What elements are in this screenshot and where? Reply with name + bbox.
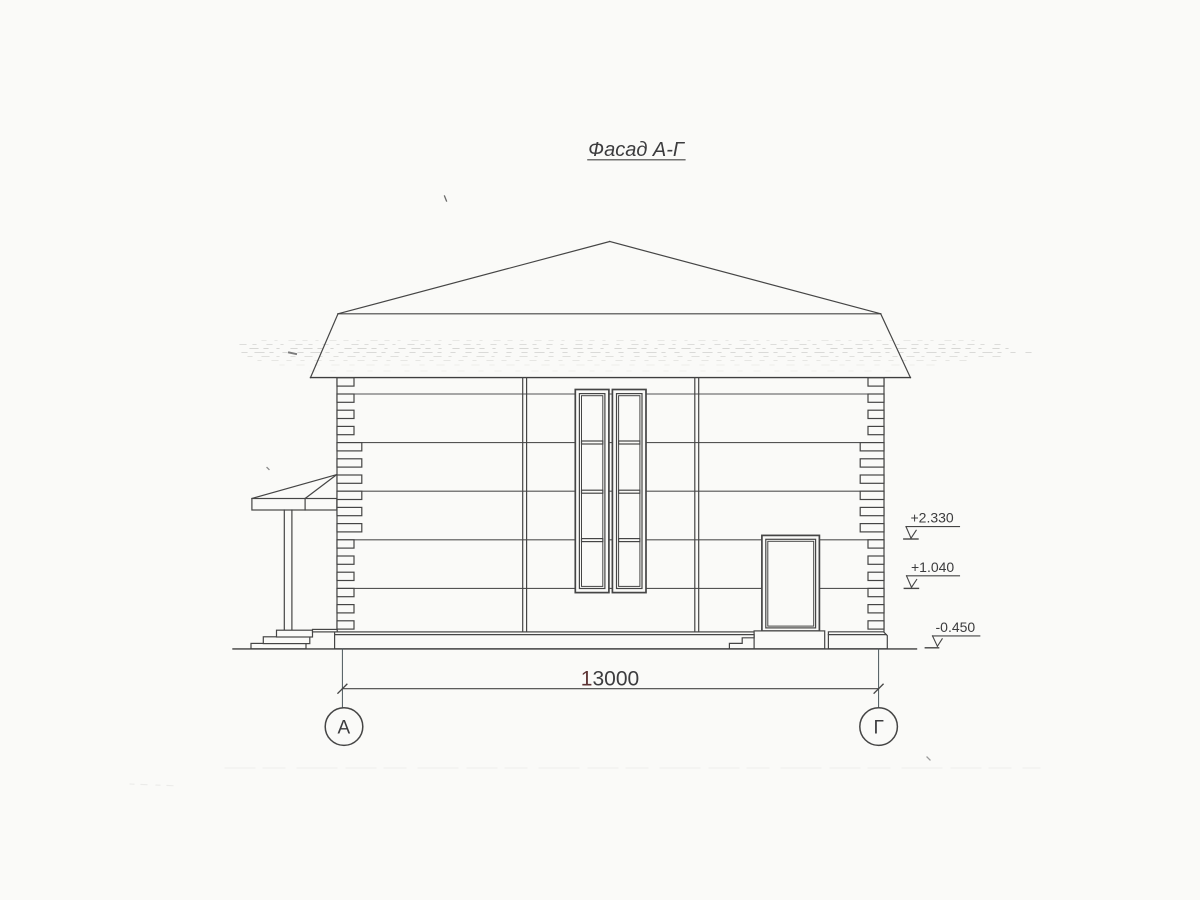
- svg-text:+2.330: +2.330: [911, 510, 954, 526]
- svg-text:-0.450: -0.450: [936, 619, 976, 635]
- svg-text:13000: 13000: [581, 668, 639, 691]
- svg-text:Г: Г: [873, 717, 883, 738]
- svg-text:А: А: [337, 717, 350, 738]
- svg-text:+1.040: +1.040: [911, 559, 954, 575]
- svg-text:Фасад А-Г: Фасад А-Г: [588, 139, 686, 161]
